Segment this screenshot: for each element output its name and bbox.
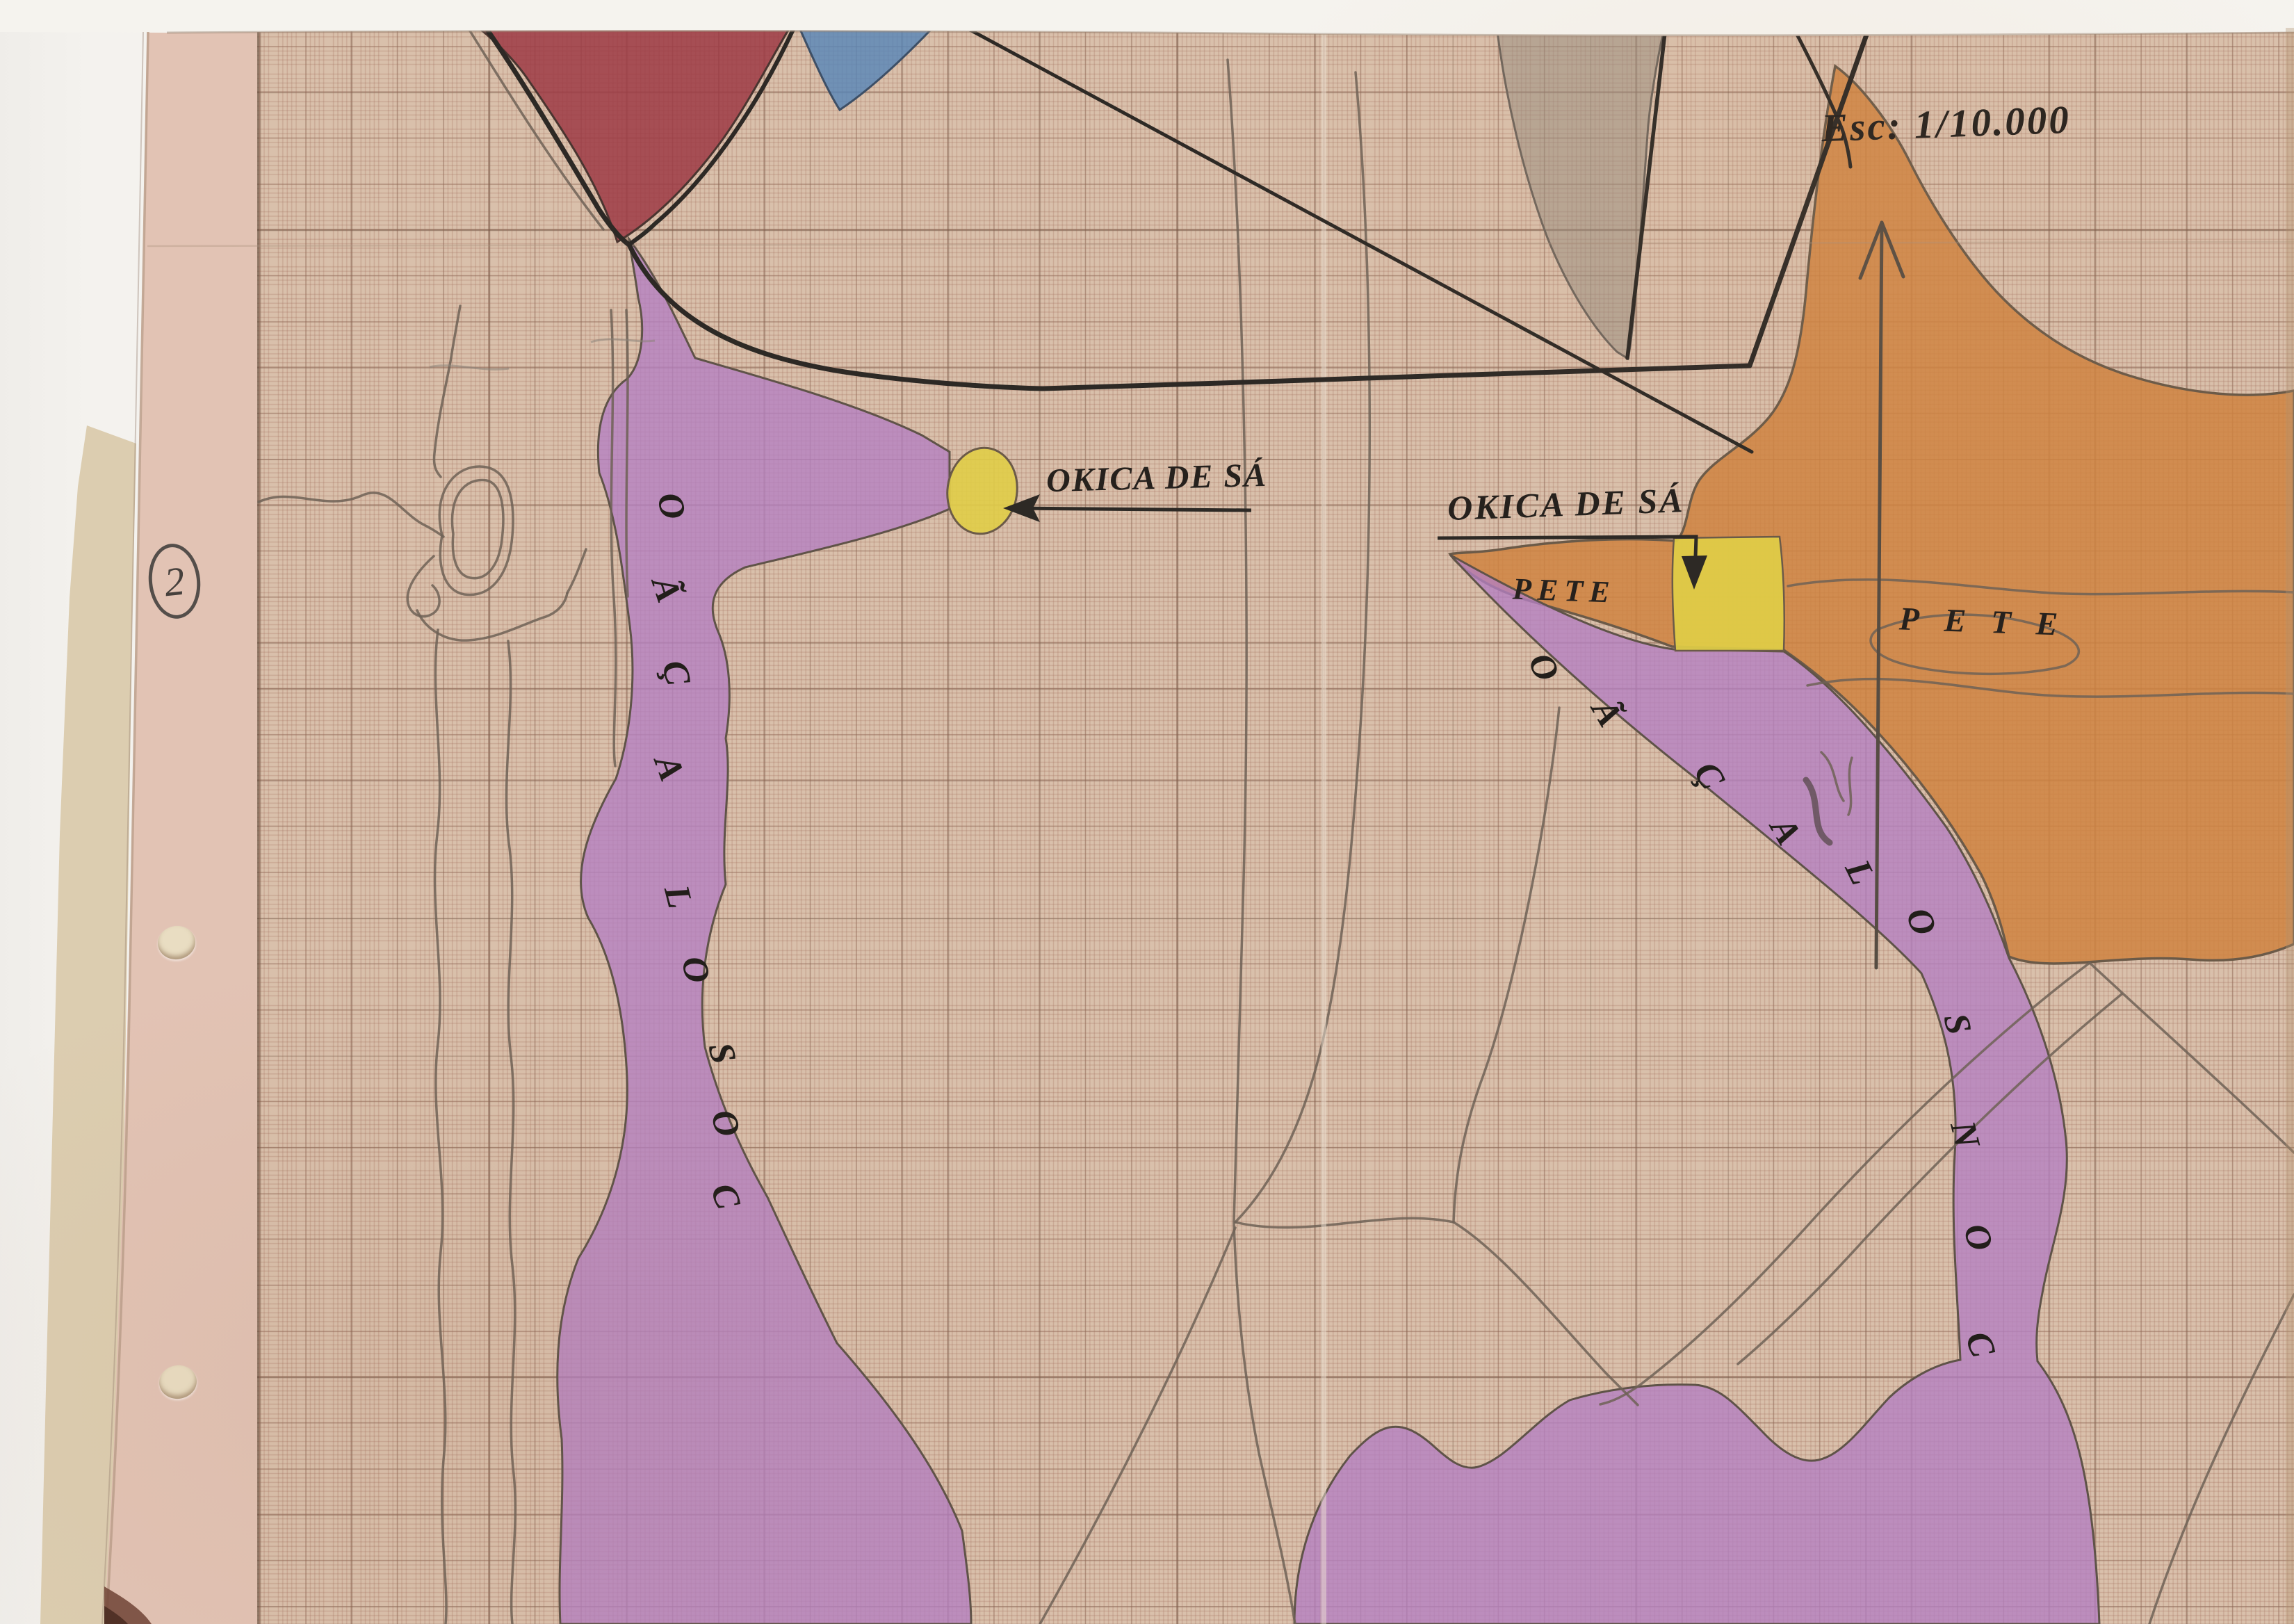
map-drawing [0,0,2294,1624]
river-long-south-2 [506,641,515,1624]
river-long-south-1 [435,630,446,1624]
road-to-right-edge [2090,963,2294,1153]
river-north-channel [434,306,460,477]
river-east-1 [611,310,616,766]
road-center-long [1228,60,1295,1624]
yellow-patch-left [942,444,1023,539]
yellow-patch-right [1673,537,1784,651]
label-okica-de-sa-right: OKICA DE SÁ [1447,482,1685,526]
river-oxbow-inner [452,480,503,578]
road-junction-east [1235,1218,1638,1405]
river-inflow [259,493,444,537]
river-east-2 [626,310,628,596]
region-red [448,8,799,242]
river-jog [567,549,586,593]
horizontal-crease [147,242,2294,246]
page-number: 2 [162,557,187,606]
paper-left-edge [106,32,148,1624]
label-okica-de-sa-left: OKICA DE SÁ [1046,459,1267,498]
okica-left-arrow-line [1014,508,1251,510]
label-pete-italic: PETE [1512,574,1616,608]
scale-note: Esc: 1/10.000 [1821,100,2072,148]
scanned-map-page: Esc: 1/10.000 OKICA DE SÁ OKICA DE SÁ PE… [0,0,2294,1624]
region-gray [1496,21,1666,359]
road-from-band [1454,708,1559,1222]
river-knot [407,556,439,617]
paper-left-edge-shadow [102,32,143,1624]
right-edge-shade [2286,28,2294,1624]
road-bottom-right [2149,1294,2294,1624]
region-purple-left [558,239,971,1624]
road-junction-southwest [1040,1228,1235,1624]
pencil-scribbles [430,339,655,369]
white-top-band [0,0,2294,36]
label-pete-spaced: PETE [1898,603,2083,642]
